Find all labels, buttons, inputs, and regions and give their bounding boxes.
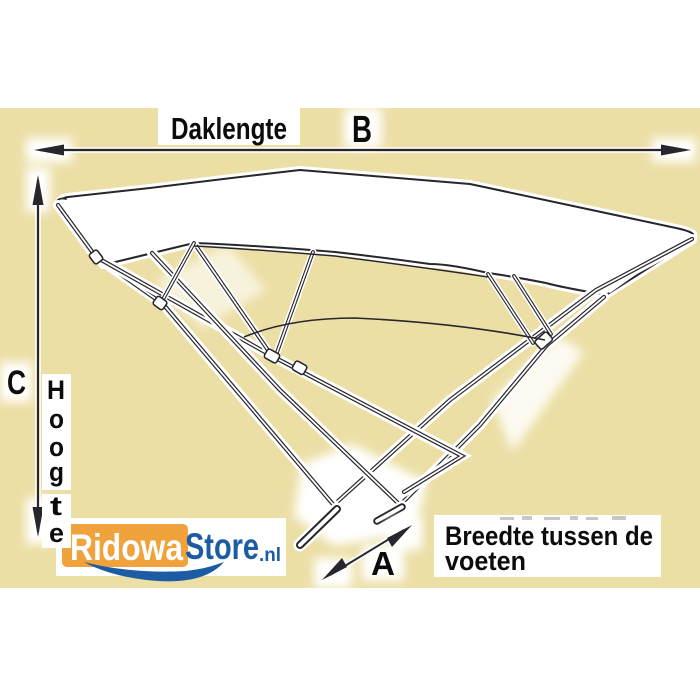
svg-text:t: t — [50, 491, 62, 521]
svg-text:Daklengte: Daklengte — [171, 111, 287, 146]
svg-text:Ridowa: Ridowa — [70, 527, 183, 568]
svg-text:C: C — [7, 364, 26, 402]
svg-text:voeten: voeten — [445, 546, 526, 576]
svg-text:o: o — [49, 404, 64, 434]
svg-text:H: H — [47, 375, 65, 405]
svg-text:A: A — [371, 545, 395, 582]
svg-text:Store: Store — [185, 526, 259, 567]
svg-text:.nl: .nl — [259, 545, 281, 566]
svg-text:B: B — [352, 109, 372, 151]
svg-text:g: g — [49, 457, 64, 487]
svg-text:e: e — [49, 518, 64, 548]
